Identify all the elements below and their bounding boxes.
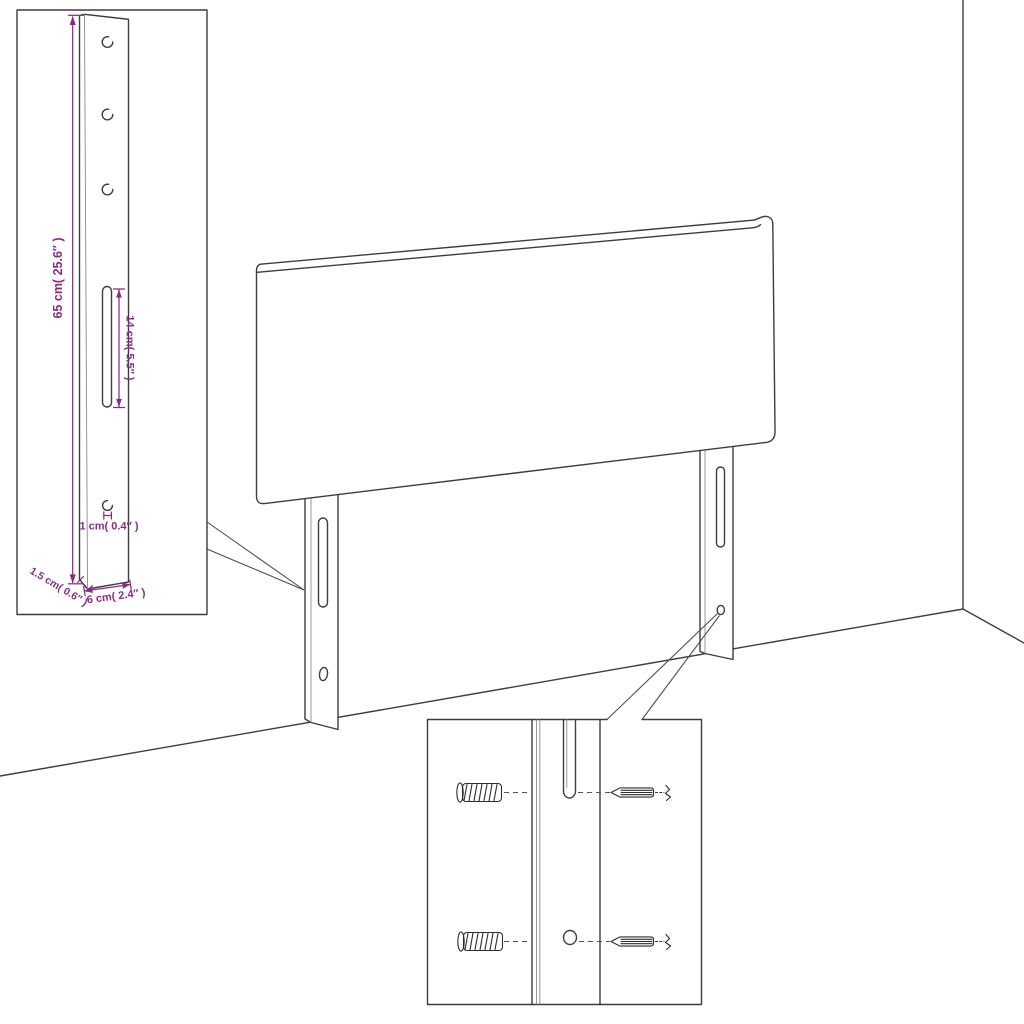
dimension-label-hole-diameter: 1 cm( 0.4″ ) <box>79 521 138 533</box>
hardware-detail-inset-frame <box>428 720 702 1005</box>
screw-icon <box>611 786 671 801</box>
headboard-dimension-diagram: 65 cm( 25.6″ ) 14 cm( 5.5″ ) 1 cm( 0.4″ … <box>0 0 1024 1024</box>
magnified-slot <box>564 720 576 799</box>
leg-detail-callout-lines <box>207 522 304 590</box>
wall-anchor-icon <box>457 783 502 802</box>
hardware-detail-inset <box>428 720 702 1005</box>
dimension-label-leg-height: 65 cm( 25.6″ ) <box>51 237 65 318</box>
magnified-anchor-hole <box>564 931 577 945</box>
magnified-leg-section <box>532 720 600 1005</box>
diagram-page: 65 cm( 25.6″ ) 14 cm( 5.5″ ) 1 cm( 0.4″ … <box>0 0 1024 1024</box>
magnified-leg <box>80 14 129 589</box>
floor-wall-line-left <box>0 609 963 776</box>
dimension-label-slot-length: 14 cm( 5.5″ ) <box>124 315 136 381</box>
screw-icon <box>611 935 671 950</box>
panel-outline <box>257 216 776 503</box>
headboard-left-leg <box>305 470 338 730</box>
headboard-panel <box>257 216 776 503</box>
wall-anchor-icon <box>458 932 503 951</box>
floor-wall-line-right <box>963 609 1024 643</box>
